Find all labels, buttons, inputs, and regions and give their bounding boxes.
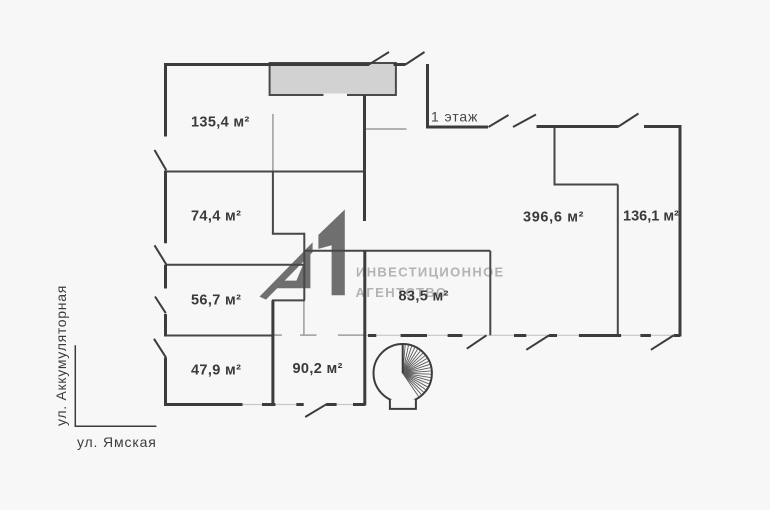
svg-text:56,7 м²: 56,7 м² (191, 293, 241, 309)
svg-text:135,4 м²: 135,4 м² (191, 115, 250, 131)
svg-text:83,5 м²: 83,5 м² (399, 289, 449, 305)
svg-text:ИНВЕСТИЦИОННОЕ: ИНВЕСТИЦИОННОЕ (356, 265, 505, 280)
svg-text:74,4 м²: 74,4 м² (191, 209, 241, 225)
svg-text:ул. Аккумуляторная: ул. Аккумуляторная (53, 285, 69, 426)
svg-text:1 этаж: 1 этаж (431, 109, 478, 125)
svg-text:47,9 м²: 47,9 м² (191, 363, 241, 379)
svg-text:ул. Ямская: ул. Ямская (77, 434, 157, 450)
svg-text:136,1 м²: 136,1 м² (623, 209, 679, 225)
svg-text:396,6 м²: 396,6 м² (523, 210, 584, 226)
svg-text:90,2 м²: 90,2 м² (293, 361, 343, 377)
